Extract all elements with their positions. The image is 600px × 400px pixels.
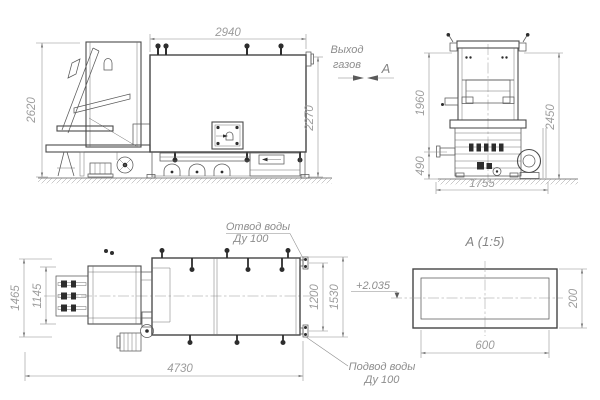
dim-side-upper-height: 1960 (415, 90, 427, 116)
grate-elements (469, 144, 504, 170)
water-supply-label-line2: Ду 100 (363, 374, 401, 386)
technical-drawing-canvas: 2620 2940 2270 Выход газов А (0, 0, 600, 400)
lifting-eyebolts-top (155, 43, 283, 55)
gas-outlet-label-line2: газов (333, 59, 361, 71)
dim-duct-height: 200 (568, 288, 580, 309)
tank-body-plan (152, 258, 300, 335)
dim-front-width: 2940 (214, 27, 241, 39)
dim-duct-width: 600 (475, 340, 495, 352)
view-a-arrow (367, 75, 378, 80)
boiler-body (150, 55, 306, 152)
water-supply-port (300, 325, 308, 337)
gas-outlet-label-line1: Выход (330, 44, 363, 56)
dim-side-base-height: 490 (415, 156, 427, 176)
drive-housing (88, 266, 141, 324)
plan-view-dimensions: 1465 1145 4730 1200 1530 (10, 257, 348, 381)
front-view-geometry (38, 42, 332, 183)
ground-hatch (38, 178, 332, 183)
water-supply-label-line1: Подвод воды (349, 361, 416, 373)
water-outlet-label-line2: Ду 100 (232, 233, 270, 245)
dim-plan-port-spacing: 1200 (309, 284, 321, 310)
dim-side-width: 1755 (469, 178, 495, 190)
water-supply-annotation: Подвод воды Ду 100 (306, 337, 415, 386)
elevation-mark: +2.035 (351, 280, 399, 299)
detail-view-title: А (1:5) (464, 234, 504, 249)
stoker-motor (90, 163, 111, 174)
dim-plan-port-span: 1530 (329, 284, 341, 310)
dim-front-height-right: 2270 (304, 105, 316, 132)
access-door (212, 122, 243, 149)
water-outlet-port (300, 257, 308, 269)
dim-plan-depth-outer: 1465 (10, 285, 22, 311)
elevation-mark-value: +2.035 (356, 280, 391, 292)
dim-plan-depth-inner: 1145 (32, 283, 44, 308)
dim-plan-length: 4730 (167, 363, 193, 375)
water-outlet-annotation: Отвод воды Ду 100 (226, 221, 304, 260)
water-outlet-label-line1: Отвод воды (226, 221, 290, 233)
gas-outlet-flange (306, 52, 311, 66)
ground-hatch (438, 179, 578, 184)
detail-view-a: А (1:5) +2.035 600 200 (351, 234, 587, 358)
side-view-dimensions: 1960 490 2450 1755 (415, 53, 563, 194)
dim-front-height-left: 2620 (26, 97, 38, 124)
plan-view-geometry (44, 248, 318, 351)
gas-flow-arrow (353, 75, 364, 80)
hopper-window (104, 59, 112, 71)
view-a-label: А (381, 61, 391, 76)
gas-outlet-annotation: Выход газов А (330, 44, 394, 81)
dim-side-total-height: 2450 (545, 104, 557, 131)
plan-eyebolts (160, 248, 291, 345)
